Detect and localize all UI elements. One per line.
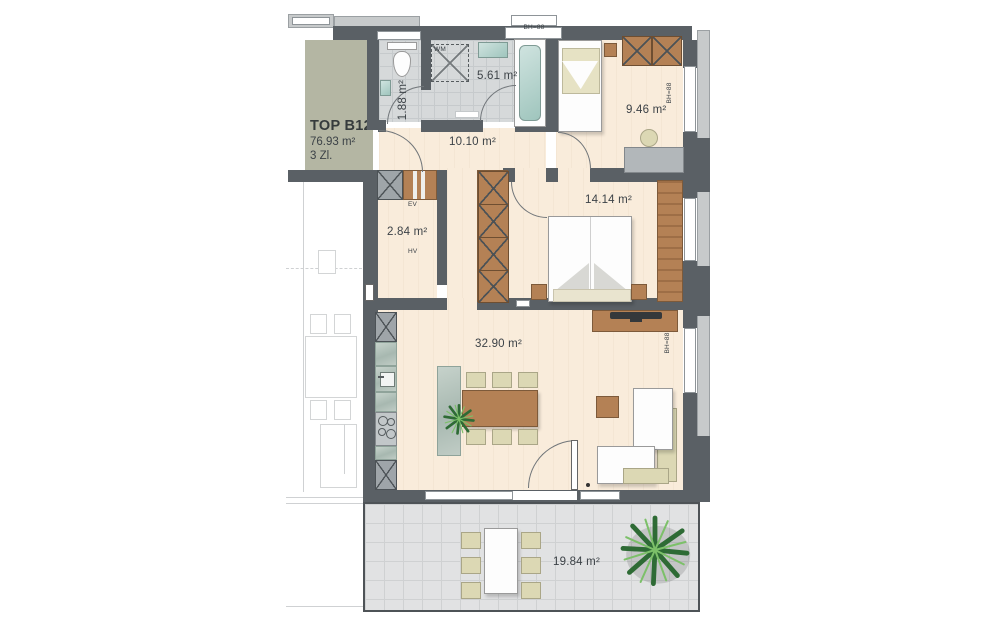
neighbour-chair [334,314,351,334]
dining-chair [518,372,538,388]
terrace-chair [461,582,481,599]
neighbour-chair [334,400,351,420]
kitchen-sink-unit [375,366,397,392]
hall-wardrobe [477,170,508,302]
hall-closet [377,170,403,200]
neighbour-chair [310,314,327,334]
tv [610,312,662,319]
kitchen-counter [375,392,397,412]
washing-machine-label: WM [434,46,446,53]
wall-bottom-stub [363,490,373,502]
bedroom-large-window [684,198,696,261]
neighbour-wall-line [303,182,304,492]
kitchen-counter [375,342,397,366]
wall-stub [546,168,558,182]
neighbour-terrace-line [286,497,363,498]
bedroom-small-window [684,66,696,132]
bath-mat [455,111,479,118]
nightstand [531,284,547,300]
window-sill-label: BH=88 [523,24,544,31]
floor-plan: TOP B12 76.93 m² 3 Zl. BH=88 BH=88 BH=88… [0,0,1000,641]
wc-sink [380,80,391,96]
dining-chair [492,429,512,445]
kitchen-cabinet [375,460,397,490]
kitchen-counter [375,446,397,460]
plant [440,400,478,438]
sofa-cushion [623,468,669,484]
wardrobe [652,36,682,66]
terrace-chair [461,532,481,549]
shower: WM [431,44,469,82]
bedroom-small-area-label: 9.46 m² [626,104,666,116]
terrace-chair [461,557,481,574]
wall-right [683,40,697,68]
unit-total-area: 76.93 m² [310,136,372,148]
toilet-cistern [387,42,417,50]
bathtub [514,39,546,127]
wc-area-label: 1.88 m² [397,78,411,122]
wall-vent [516,300,530,307]
hall-shelf [403,170,437,200]
wall-left-upper [367,40,379,130]
wall-storage-right [437,170,447,285]
terrace-chair [521,582,541,599]
neighbour-sofa-line [344,424,345,474]
dining-chair [518,429,538,445]
unit-label: TOP B12 [310,118,372,134]
bathroom-sink [478,42,508,58]
hallway-corridor-floor [447,168,477,310]
dining-chair [492,372,512,388]
unit-room-count: 3 Zl. [310,150,372,162]
single-bed [558,40,602,132]
hv-label: HV [408,248,417,255]
balcony-divider [697,266,710,316]
terrace-chair [521,532,541,549]
wall-bath-bedroom [546,40,558,132]
wall-right [683,261,697,328]
desk [624,147,684,173]
palm-plant [615,508,695,592]
storage-door-leaf [365,284,374,301]
neighbour-terrace-line [286,503,363,504]
double-bed [548,216,632,302]
bathroom-area-label: 5.61 m² [477,70,517,82]
wall-storage-bottom [363,298,447,310]
wall-wc-bath [421,40,431,90]
bedroom-wardrobe [657,180,683,302]
neighbour-terrace-line [286,606,363,607]
balcony-divider [697,436,710,502]
wall-bath-bottom [421,120,483,132]
terrace-door-threshold [513,491,577,500]
wc-window [377,31,421,40]
wall-neighbour-boundary [288,170,378,182]
wall-right [683,393,697,502]
nightstand [631,284,647,300]
terrace-chair [521,557,541,574]
nightstand [604,43,617,57]
neighbour-window [292,17,330,25]
bedroom-large-area-label: 14.14 m² [585,194,632,206]
terrace-door-leaf [571,440,578,490]
stove [375,412,397,446]
living-area-label: 32.90 m² [475,338,522,350]
kitchen-cabinet [375,312,397,342]
window-sill-label-box: BH=88 [511,15,557,26]
tv-stand [630,319,642,322]
stool [640,129,658,147]
living-south-window [580,491,620,500]
neighbour-cabinet [318,250,336,274]
window-sill-label: BH=88 [666,76,676,110]
hallway-area-label: 10.10 m² [449,136,496,148]
ev-label: EV [408,201,417,208]
title-block: TOP B12 76.93 m² 3 Zl. [305,40,373,170]
balcony-divider [697,138,710,192]
terrace-area-label: 19.84 m² [553,556,600,568]
neighbour-table [305,336,357,398]
neighbour-sofa [320,424,357,488]
wall-right [683,132,697,198]
living-south-window [425,491,513,500]
living-window [684,328,696,393]
storage-area-label: 2.84 m² [387,226,427,238]
neighbour-chair [310,400,327,420]
door-handle [586,483,590,487]
terrace-table [484,528,518,594]
side-table [596,396,619,418]
sofa-back [633,388,673,450]
wardrobe [622,36,652,66]
dining-chair [466,372,486,388]
